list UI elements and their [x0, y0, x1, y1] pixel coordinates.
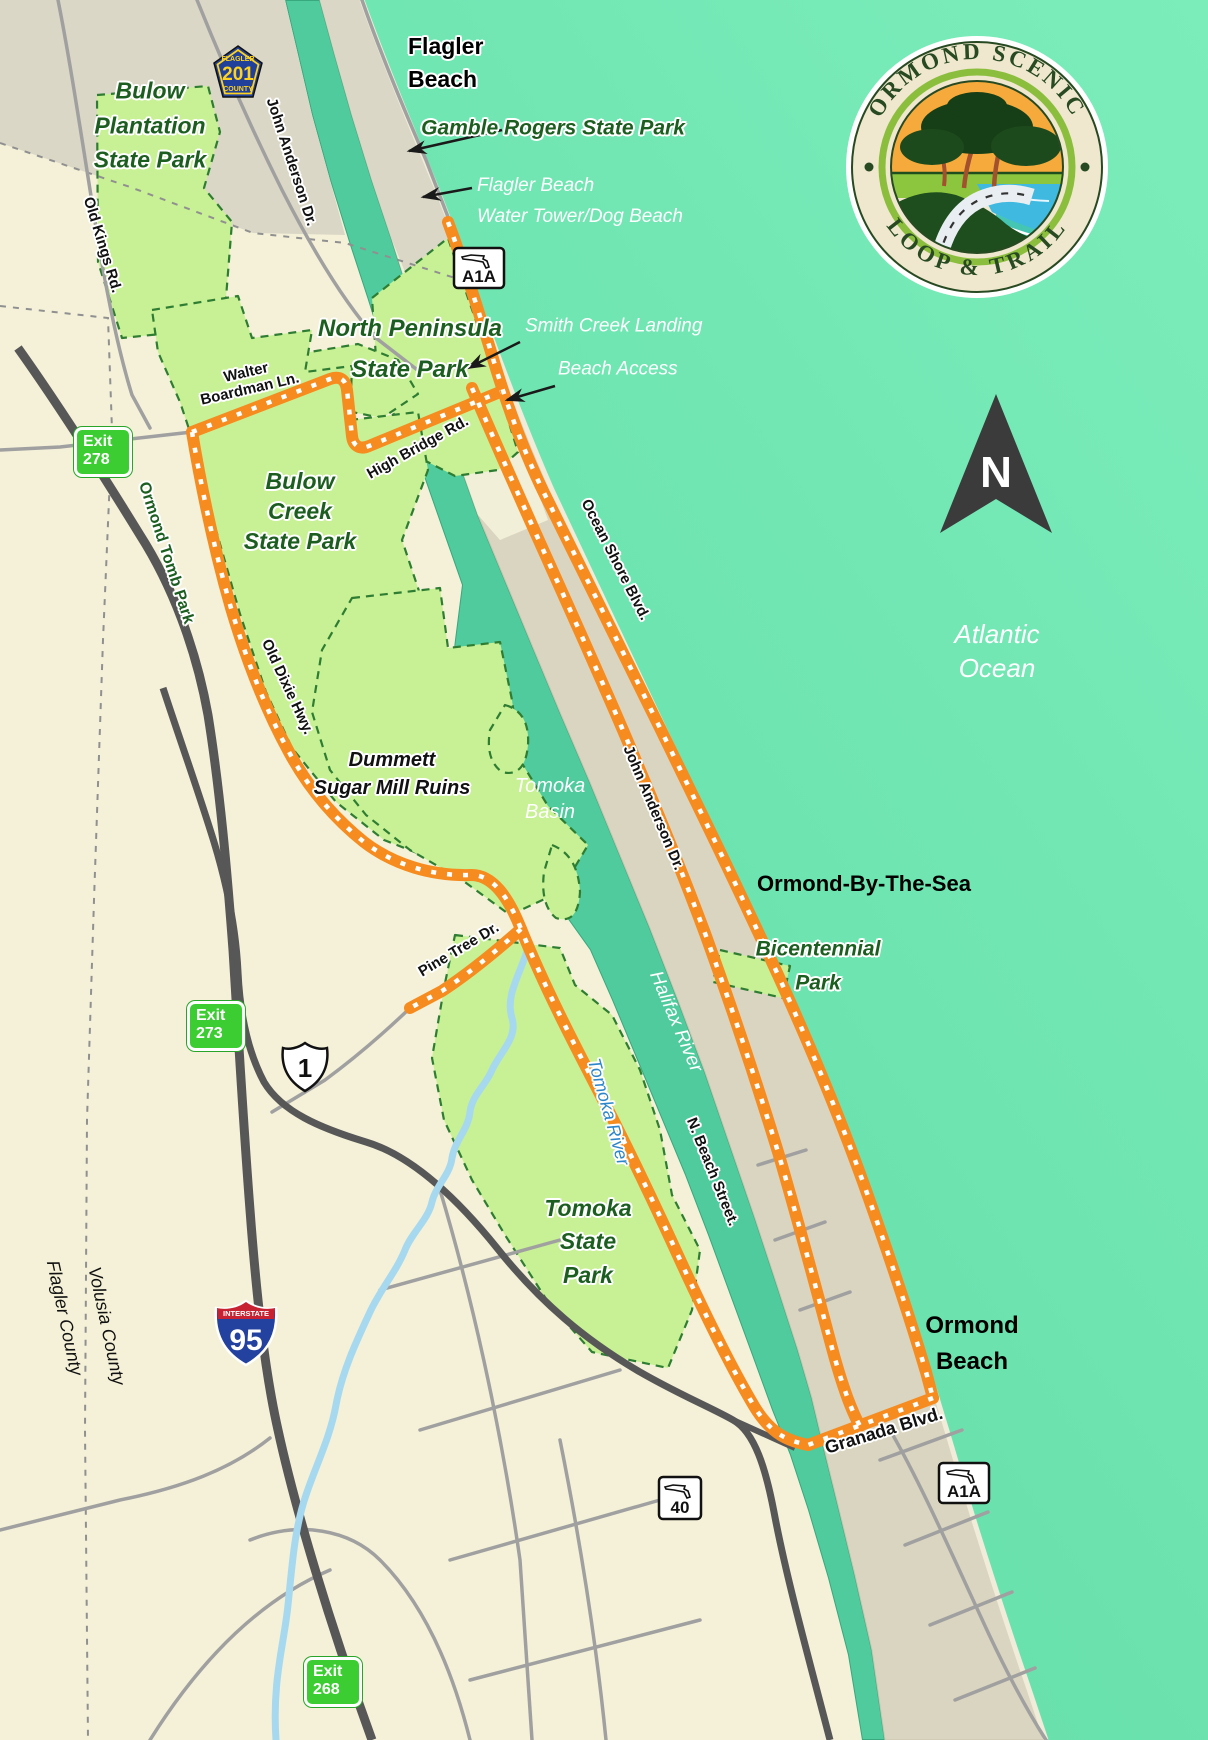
a1a-north-text: A1A — [462, 267, 496, 286]
a1a-shield-south: A1A — [937, 1461, 991, 1505]
i95-number-text: 95 — [229, 1324, 262, 1357]
exit-273-number: 273 — [196, 1025, 242, 1043]
ormond-scenic-loop-trail-logo: ORMOND SCENIC LOOP & TRAIL — [844, 34, 1110, 300]
exit-278-word: Exit — [83, 433, 129, 451]
i95-shield: INTERSTATE 95 — [212, 1298, 280, 1368]
north-arrow-letter: N — [980, 448, 1012, 497]
i95-word-text: INTERSTATE — [223, 1309, 269, 1318]
county-201-shield: FLAGLER 201 COUNTY — [213, 45, 263, 99]
exit-278-sign: Exit 278 — [74, 427, 132, 477]
a1a-shield-north: A1A — [452, 246, 506, 290]
sr40-shield: 40 — [657, 1475, 703, 1521]
exit-273-word: Exit — [196, 1007, 242, 1025]
north-arrow: N — [937, 392, 1055, 536]
county-201-number: 201 — [222, 64, 254, 85]
exit-268-word: Exit — [313, 1663, 359, 1681]
county-201-top-text: FLAGLER — [221, 56, 254, 63]
exit-268-sign: Exit 268 — [304, 1657, 362, 1707]
exit-273-sign: Exit 273 — [187, 1001, 245, 1051]
exit-268-number: 268 — [313, 1681, 359, 1699]
a1a-south-text: A1A — [947, 1482, 981, 1501]
sr40-text: 40 — [671, 1498, 690, 1517]
us1-shield: 1 — [279, 1040, 331, 1094]
ormond-scenic-loop-map: Flagler Beach Ormond-By-The-Sea Ormond B… — [0, 0, 1208, 1740]
exit-278-number: 278 — [83, 451, 129, 469]
county-201-bottom-text: COUNTY — [223, 86, 253, 93]
us1-text: 1 — [298, 1053, 312, 1083]
